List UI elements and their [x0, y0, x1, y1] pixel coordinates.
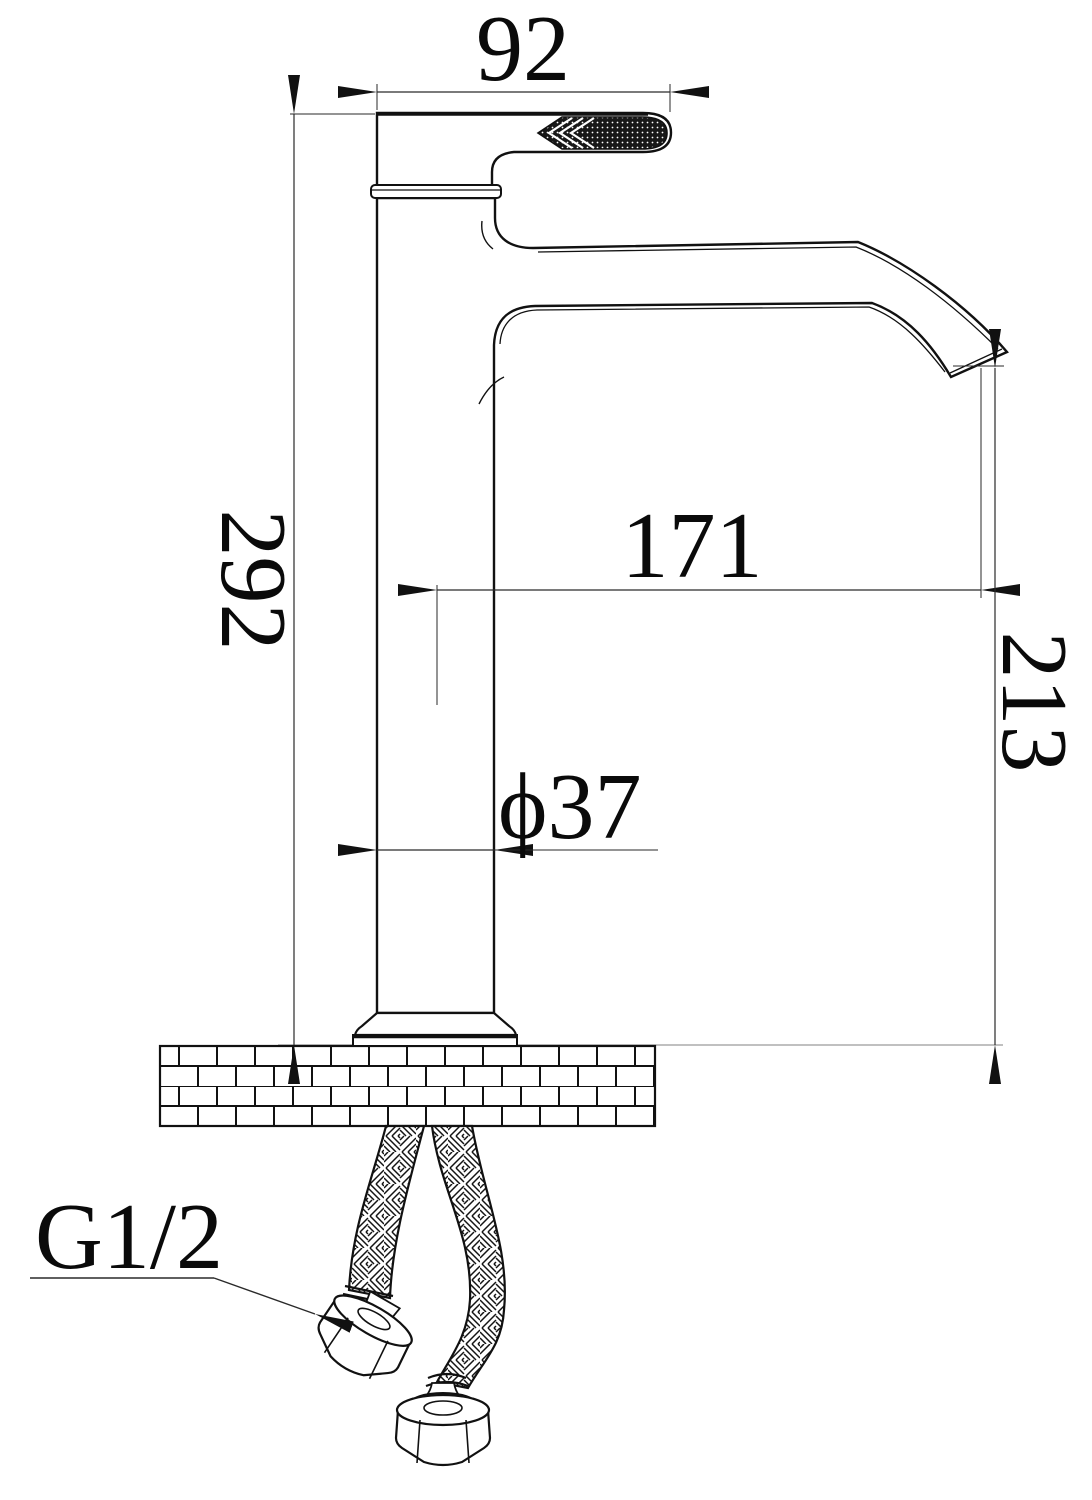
collar: [371, 185, 501, 198]
dim-top-width-label: 92: [476, 0, 570, 101]
thread-size-label: G1/2: [35, 1185, 223, 1289]
dim-overall-height-label: 292: [201, 510, 305, 651]
braided-hose-right: [432, 1126, 505, 1388]
brick-section: [160, 1046, 655, 1126]
dim-body-diameter-label: ϕ37: [498, 755, 641, 859]
countertop: [160, 1045, 1003, 1126]
dim-spout-reach-label: 171: [622, 494, 763, 598]
hex-nut-right: [396, 1383, 490, 1465]
dim-spout-outlet-height-label: 213: [982, 632, 1086, 773]
braided-hose-left: [349, 1126, 424, 1298]
drawing-canvas: 92 292 171 213 ϕ37 G1/2: [0, 0, 1092, 1500]
body-and-spout: [377, 198, 1007, 1013]
hex-nut-left: [307, 1277, 424, 1390]
technical-drawing: 92 292 171 213 ϕ37 G1/2: [0, 0, 1092, 1500]
base-flange: [353, 1013, 517, 1046]
knurled-grip: [538, 117, 667, 149]
